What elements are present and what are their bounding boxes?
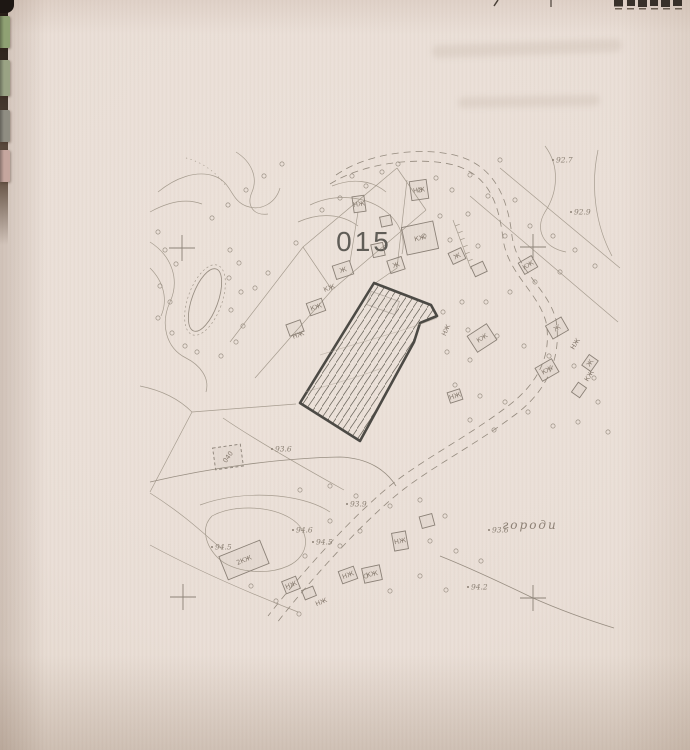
tree-symbol [226,203,230,207]
photographed-map-page: 015 городи КЖНЖНЖЖЖКЖЖКЖЖКЖКЖЖНЖ2КЖНЖНЖК… [0,0,690,750]
tree-symbol [170,331,174,335]
building: Ж [448,248,466,265]
tree-symbol [572,364,576,368]
building [419,514,435,529]
tree-symbol [434,176,438,180]
tree-symbol [262,174,266,178]
elevation-point [467,586,469,588]
tree-symbol [478,394,482,398]
tree-symbol [443,514,447,518]
tree-symbol [195,350,199,354]
building: НЖ [447,389,463,403]
tree-symbol [476,244,480,248]
elevation-point [552,159,554,161]
tree-symbol [328,484,332,488]
building: НЖ [282,576,301,594]
grid-cross [170,584,196,610]
tree-symbol [303,554,307,558]
tree-symbol [466,212,470,216]
elevation-label: 94.2 [471,583,488,592]
tree-symbol [229,308,233,312]
building-label: КЖ [583,369,596,383]
tree-symbol [253,286,257,290]
tree-symbol [163,248,167,252]
tree-symbol [338,544,342,548]
tree-symbol [320,208,324,212]
tree-symbol [358,529,362,533]
tree-symbol [503,400,507,404]
tree-symbol [573,248,577,252]
tree-symbol [558,270,562,274]
building: Ж [387,257,405,274]
building: Ж [582,355,598,372]
tree-symbol [234,340,238,344]
elevation-label: 94.5 [215,543,232,552]
tree-symbol [210,216,214,220]
grid-cross [520,234,546,260]
tree-symbol [528,224,532,228]
building: НЖ [338,566,357,584]
building: КЖ [401,221,438,255]
building-label: НЖ [569,337,582,351]
building [471,261,487,276]
tree-symbol [486,194,490,198]
tree-symbol [503,234,507,238]
tree-symbol [350,174,354,178]
tree-symbol [266,271,270,275]
building-label: НЖ [413,185,426,195]
elevation-label: 93.6 [492,526,509,535]
elevation-point [570,211,572,213]
tree-symbol [453,383,457,387]
tree-symbol [244,188,248,192]
tree-symbol [237,261,241,265]
tree-symbol [219,354,223,358]
tree-symbol [551,424,555,428]
tree-symbol [298,488,302,492]
tree-symbol [468,358,472,362]
tree-symbol [328,519,332,523]
building: Ж [545,317,568,339]
tree-symbol [466,328,470,332]
elevation-point [312,541,314,543]
building-label: НЖ [440,323,452,337]
tree-symbol [249,584,253,588]
tree-symbol [418,498,422,502]
cadastral-map-linework: 015 городи КЖНЖНЖЖЖКЖЖКЖЖКЖКЖЖНЖ2КЖНЖНЖК… [0,0,690,750]
elevation-point [271,448,273,450]
elevation-point [488,529,490,531]
tree-symbol [294,241,298,245]
tree-symbol [498,158,502,162]
tree-symbol [274,599,278,603]
tree-symbol [445,350,449,354]
tree-symbol [156,316,160,320]
tree-symbol [450,188,454,192]
tree-symbol [239,290,243,294]
building: КЖ [518,256,537,275]
building [302,586,317,600]
tree-symbol [468,173,472,177]
building [571,382,586,398]
tree-symbol [606,430,610,434]
tree-symbol [508,290,512,294]
elevation-label: 94.5 [316,538,333,547]
building: НЖ [409,179,428,200]
building: КЖ [467,324,497,352]
mound-symbol [176,259,233,340]
tree-symbol [547,354,551,358]
tree-symbol [354,494,358,498]
elevation-label: 94.6 [296,526,313,535]
elevation-label: 93.6 [275,445,292,454]
tree-symbol [513,198,517,202]
tree-symbol [228,248,232,252]
tree-symbol [593,264,597,268]
tree-symbol [364,184,368,188]
tree-symbol [438,214,442,218]
building [371,242,385,257]
tree-symbol [484,300,488,304]
building: Ж [332,261,353,280]
building: НЖ [392,531,409,551]
building: КЖ [362,565,383,583]
tree-symbol [428,539,432,543]
tree-symbol [522,344,526,348]
tree-symbol [297,612,301,616]
small-plot-040: 040 [213,444,244,470]
tree-symbol [576,420,580,424]
tree-symbol [454,549,458,553]
tree-symbol [227,276,231,280]
tree-symbol [380,170,384,174]
elevation-label: 92.9 [574,208,591,217]
building: НЖ [352,195,366,213]
tree-symbol [156,230,160,234]
land-use-label: городи [502,518,558,532]
elevation-point [211,546,213,548]
tree-symbol [448,238,452,242]
building-label: КЖ [322,282,336,293]
elevation-point [346,503,348,505]
tree-symbol [526,410,530,414]
tree-symbol [468,418,472,422]
grid-cross [520,585,546,611]
tree-symbol [174,262,178,266]
tree-symbol [441,310,445,314]
cropped-stamp-marks [494,0,682,10]
tree-symbol [444,588,448,592]
tree-symbol [183,344,187,348]
building-label: НЖ [314,596,328,608]
building [380,215,393,227]
tree-symbol [396,162,400,166]
elevation-point [292,529,294,531]
elevation-label: 92.7 [556,156,573,165]
tree-symbol [388,504,392,508]
tree-symbol [479,559,483,563]
tree-symbol [596,400,600,404]
tree-symbol [418,574,422,578]
building-label: НЖ [353,199,366,209]
tree-symbol [388,589,392,593]
elevation-label: 93.9 [350,500,367,509]
building: КЖ [535,359,559,381]
tree-symbol [551,234,555,238]
tree-symbol [280,162,284,166]
grid-cross [169,235,195,261]
tree-symbol [460,300,464,304]
tree-symbol [338,196,342,200]
